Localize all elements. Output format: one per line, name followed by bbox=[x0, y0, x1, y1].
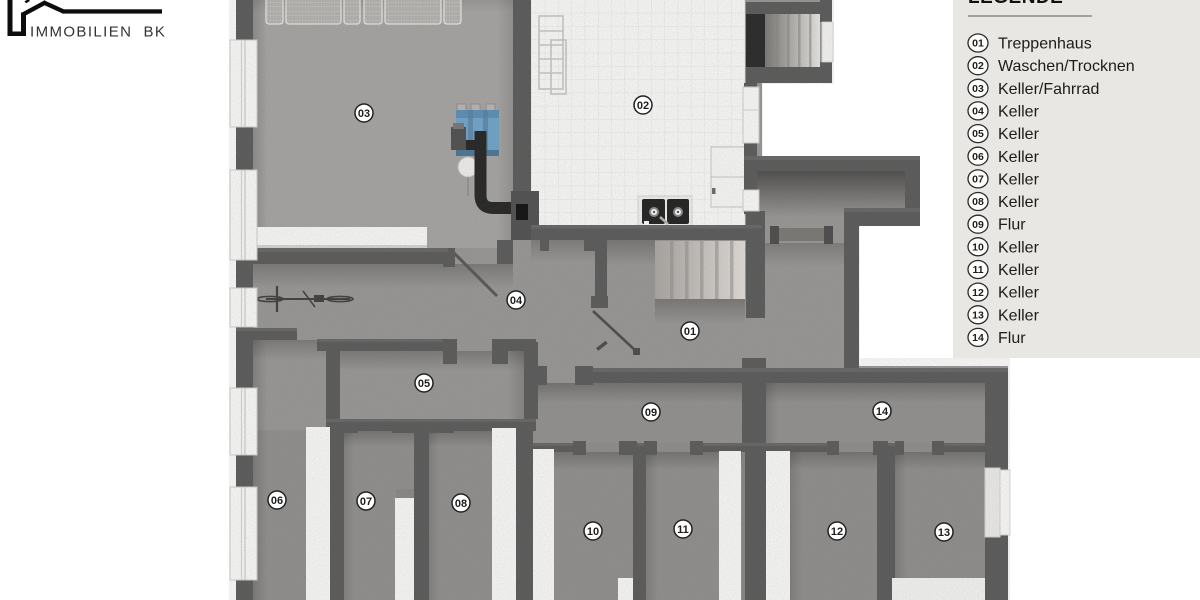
svg-text:03: 03 bbox=[358, 108, 370, 120]
svg-text:10: 10 bbox=[587, 526, 599, 538]
svg-text:01: 01 bbox=[972, 38, 984, 50]
svg-text:Keller: Keller bbox=[998, 307, 1040, 324]
svg-text:05: 05 bbox=[418, 378, 430, 390]
svg-text:12: 12 bbox=[831, 526, 843, 538]
svg-text:Waschen/Trocknen: Waschen/Trocknen bbox=[998, 58, 1135, 75]
svg-text:11: 11 bbox=[677, 524, 689, 536]
svg-text:11: 11 bbox=[972, 264, 983, 276]
svg-text:Keller: Keller bbox=[998, 103, 1040, 120]
svg-text:07: 07 bbox=[972, 174, 984, 186]
svg-text:Keller: Keller bbox=[998, 194, 1040, 211]
svg-text:12: 12 bbox=[972, 287, 984, 299]
svg-text:IMMOBILIEN BK: IMMOBILIEN BK bbox=[30, 24, 166, 41]
svg-text:LEGENDE: LEGENDE bbox=[968, 0, 1063, 8]
svg-text:Keller/Fahrrad: Keller/Fahrrad bbox=[998, 81, 1099, 98]
svg-text:08: 08 bbox=[455, 498, 467, 510]
svg-text:04: 04 bbox=[510, 295, 523, 307]
svg-text:Keller: Keller bbox=[998, 239, 1040, 256]
svg-text:Keller: Keller bbox=[998, 171, 1040, 188]
svg-text:Flur: Flur bbox=[998, 217, 1026, 234]
svg-text:10: 10 bbox=[972, 241, 984, 253]
svg-text:Keller: Keller bbox=[998, 285, 1040, 302]
svg-text:Keller: Keller bbox=[998, 149, 1040, 166]
svg-text:05: 05 bbox=[972, 128, 984, 140]
svg-text:04: 04 bbox=[972, 106, 984, 118]
svg-text:Treppenhaus: Treppenhaus bbox=[998, 36, 1092, 53]
svg-text:Keller: Keller bbox=[998, 126, 1040, 143]
svg-text:Flur: Flur bbox=[998, 330, 1026, 347]
svg-text:07: 07 bbox=[360, 496, 372, 508]
svg-text:13: 13 bbox=[938, 527, 950, 539]
svg-text:01: 01 bbox=[684, 326, 696, 338]
svg-text:03: 03 bbox=[972, 83, 984, 95]
svg-text:Keller: Keller bbox=[998, 262, 1040, 279]
svg-text:06: 06 bbox=[972, 151, 984, 163]
svg-text:09: 09 bbox=[645, 407, 657, 419]
svg-text:02: 02 bbox=[972, 60, 984, 72]
svg-text:09: 09 bbox=[972, 219, 984, 231]
svg-text:08: 08 bbox=[972, 196, 984, 208]
svg-text:13: 13 bbox=[972, 309, 984, 321]
svg-text:14: 14 bbox=[972, 332, 984, 344]
svg-text:14: 14 bbox=[876, 406, 889, 418]
svg-text:06: 06 bbox=[271, 495, 283, 507]
svg-text:02: 02 bbox=[637, 100, 649, 112]
